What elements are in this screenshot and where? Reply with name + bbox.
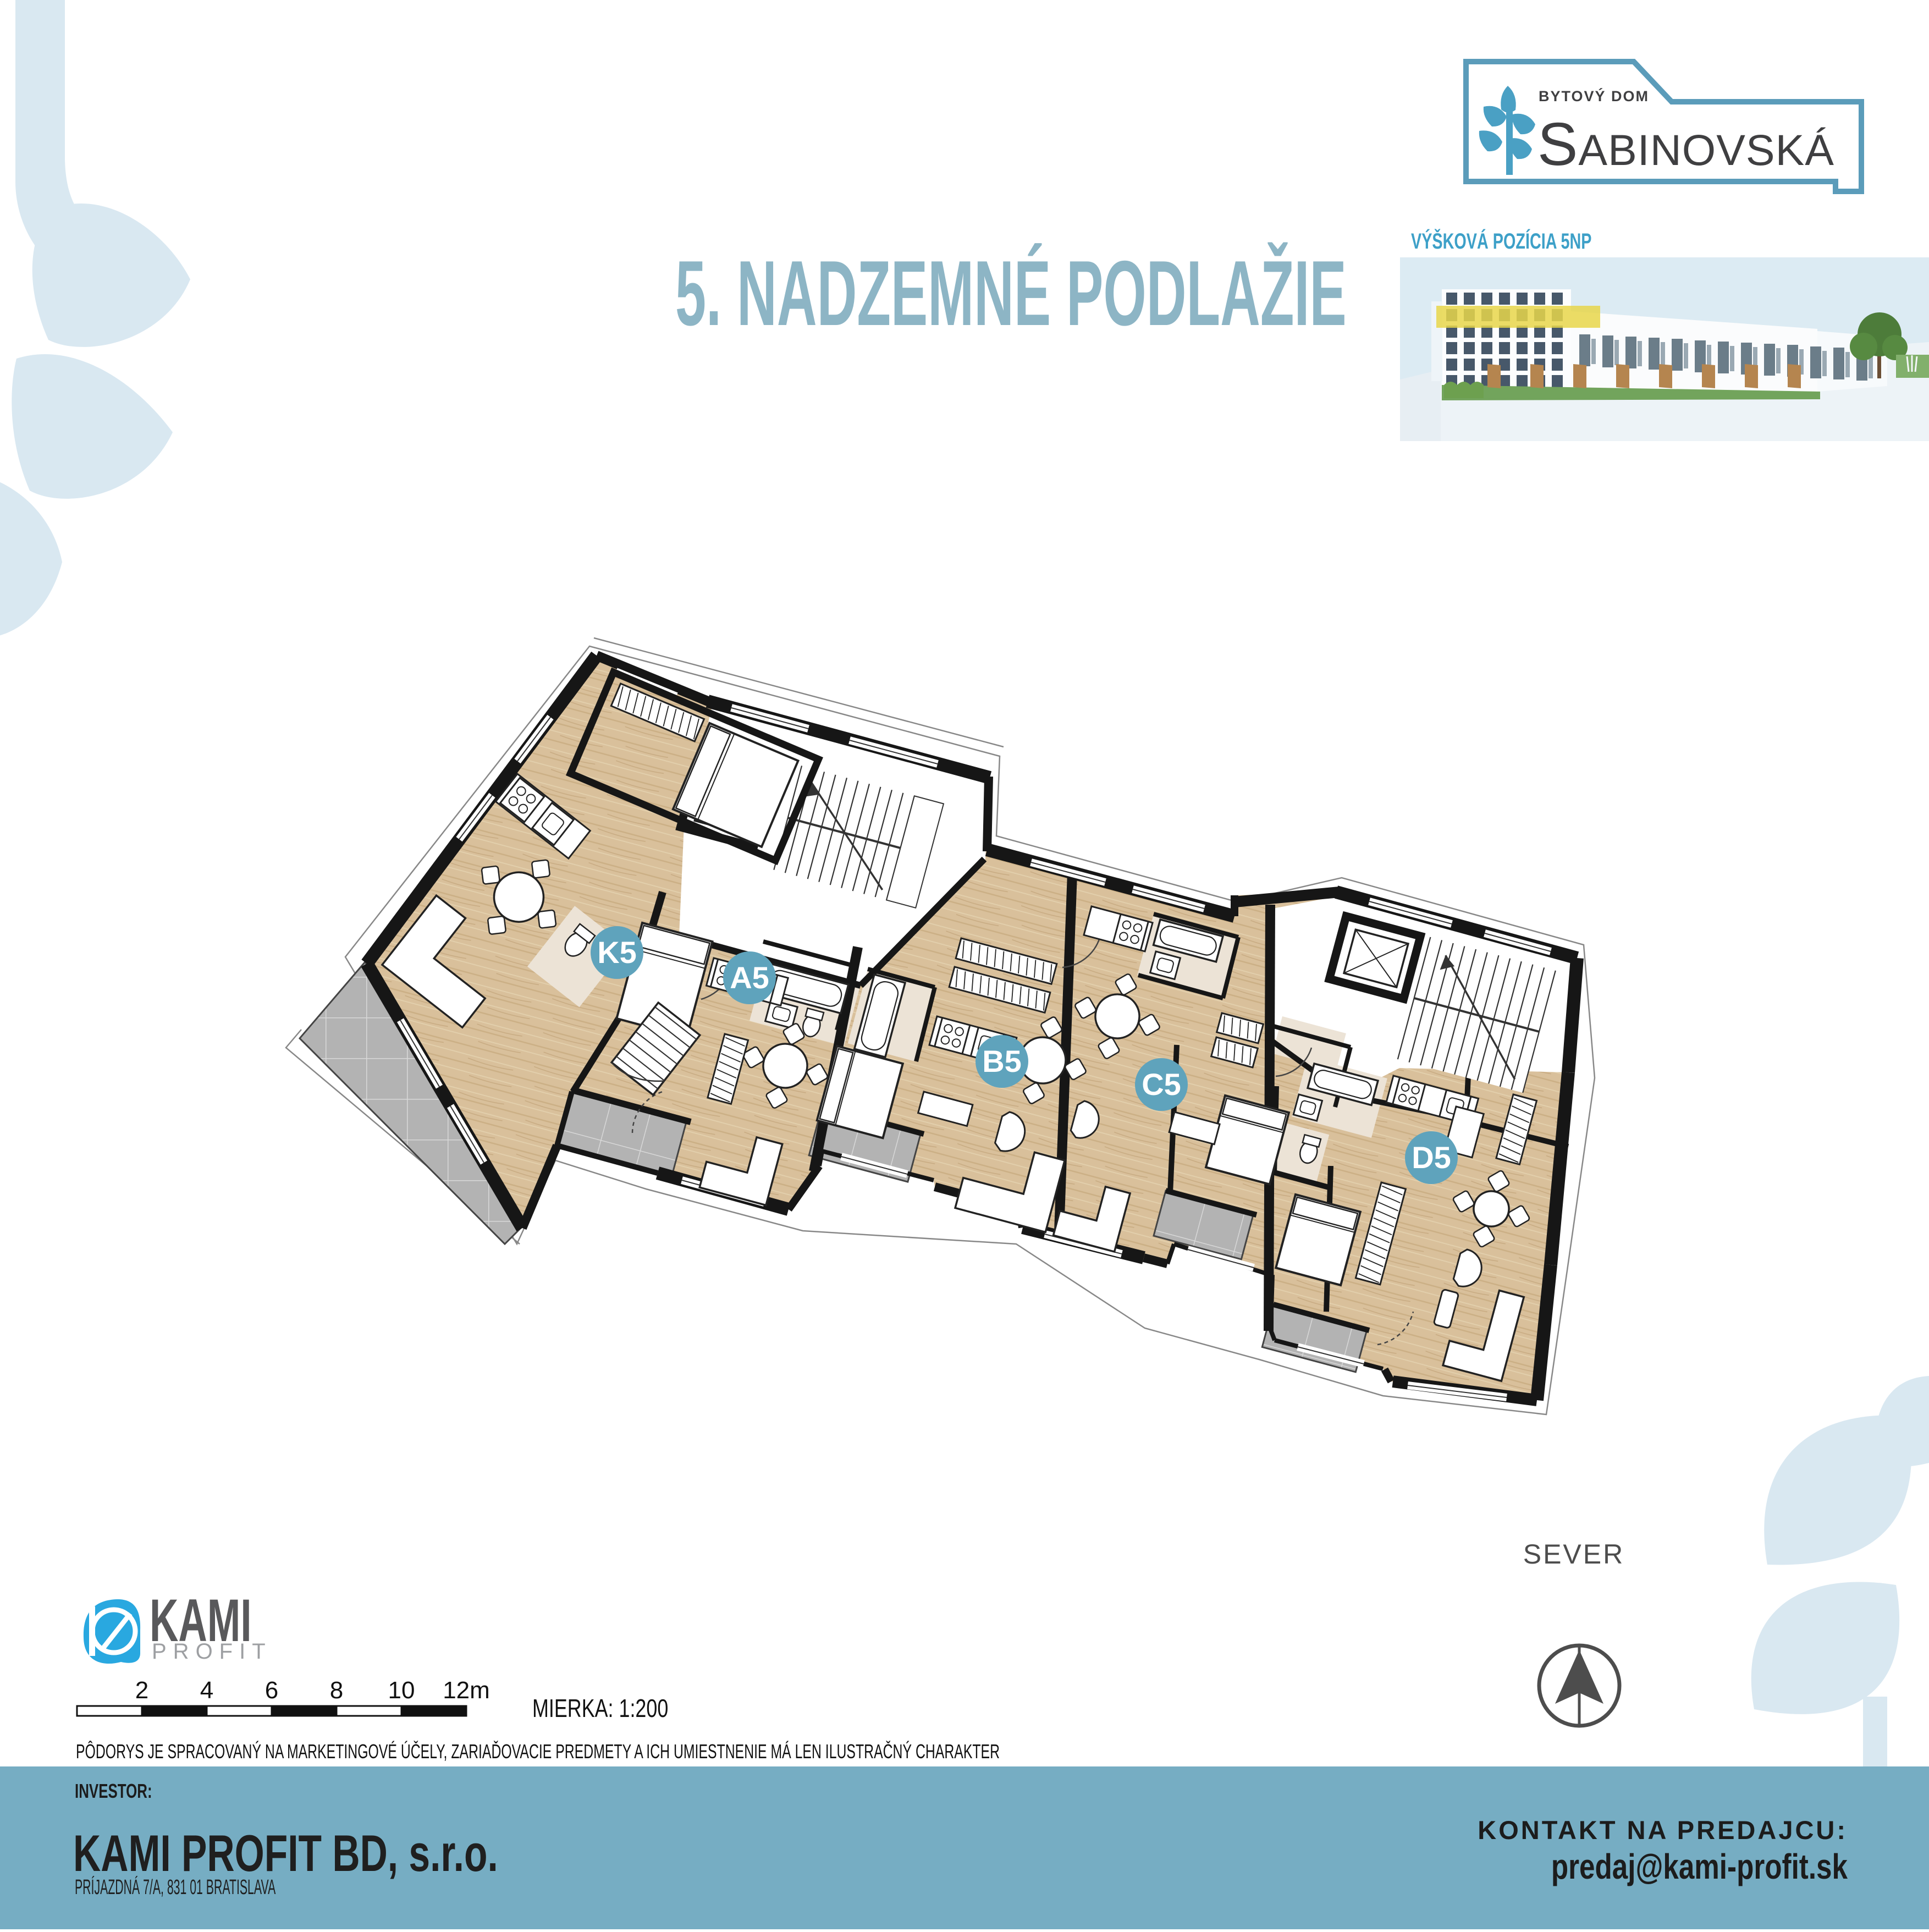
svg-text:INVESTOR:: INVESTOR:	[75, 1780, 152, 1802]
svg-text:6: 6	[265, 1677, 278, 1704]
svg-text:predaj@kami-profit.sk: predaj@kami-profit.sk	[1551, 1848, 1848, 1887]
svg-text:PROFIT: PROFIT	[152, 1639, 272, 1664]
svg-text:12m: 12m	[443, 1677, 490, 1704]
svg-text:BYTOVÝ DOM: BYTOVÝ DOM	[1539, 87, 1649, 104]
svg-text:8: 8	[330, 1677, 343, 1704]
svg-text:C5: C5	[1142, 1067, 1181, 1102]
svg-text:D5: D5	[1412, 1140, 1451, 1175]
svg-text:10: 10	[388, 1677, 415, 1704]
svg-text:KAMI PROFIT BD, s.r.o.: KAMI PROFIT BD, s.r.o.	[73, 1824, 498, 1883]
svg-text:PRÍJAZDNÁ 7/A, 831 01 BRATISLA: PRÍJAZDNÁ 7/A, 831 01 BRATISLAVA	[75, 1875, 276, 1898]
svg-text:4: 4	[200, 1677, 213, 1704]
svg-text:5. NADZEMNÉ PODLAŽIE: 5. NADZEMNÉ PODLAŽIE	[675, 241, 1347, 345]
svg-text:A5: A5	[730, 960, 769, 995]
svg-text:PÔDORYS JE SPRACOVANÝ NA MARKE: PÔDORYS JE SPRACOVANÝ NA MARKETINGOVÉ ÚČ…	[76, 1740, 1000, 1763]
svg-text:B5: B5	[982, 1044, 1022, 1078]
svg-text:K5: K5	[597, 935, 637, 970]
svg-text:MIERKA: 1:200: MIERKA: 1:200	[532, 1694, 668, 1722]
svg-text:VÝŠKOVÁ POZÍCIA 5NP: VÝŠKOVÁ POZÍCIA 5NP	[1411, 228, 1592, 254]
svg-text:SEVER: SEVER	[1523, 1539, 1625, 1570]
svg-text:KONTAKT NA PREDAJCU:: KONTAKT NA PREDAJCU:	[1478, 1815, 1848, 1845]
svg-text:2: 2	[135, 1677, 148, 1704]
